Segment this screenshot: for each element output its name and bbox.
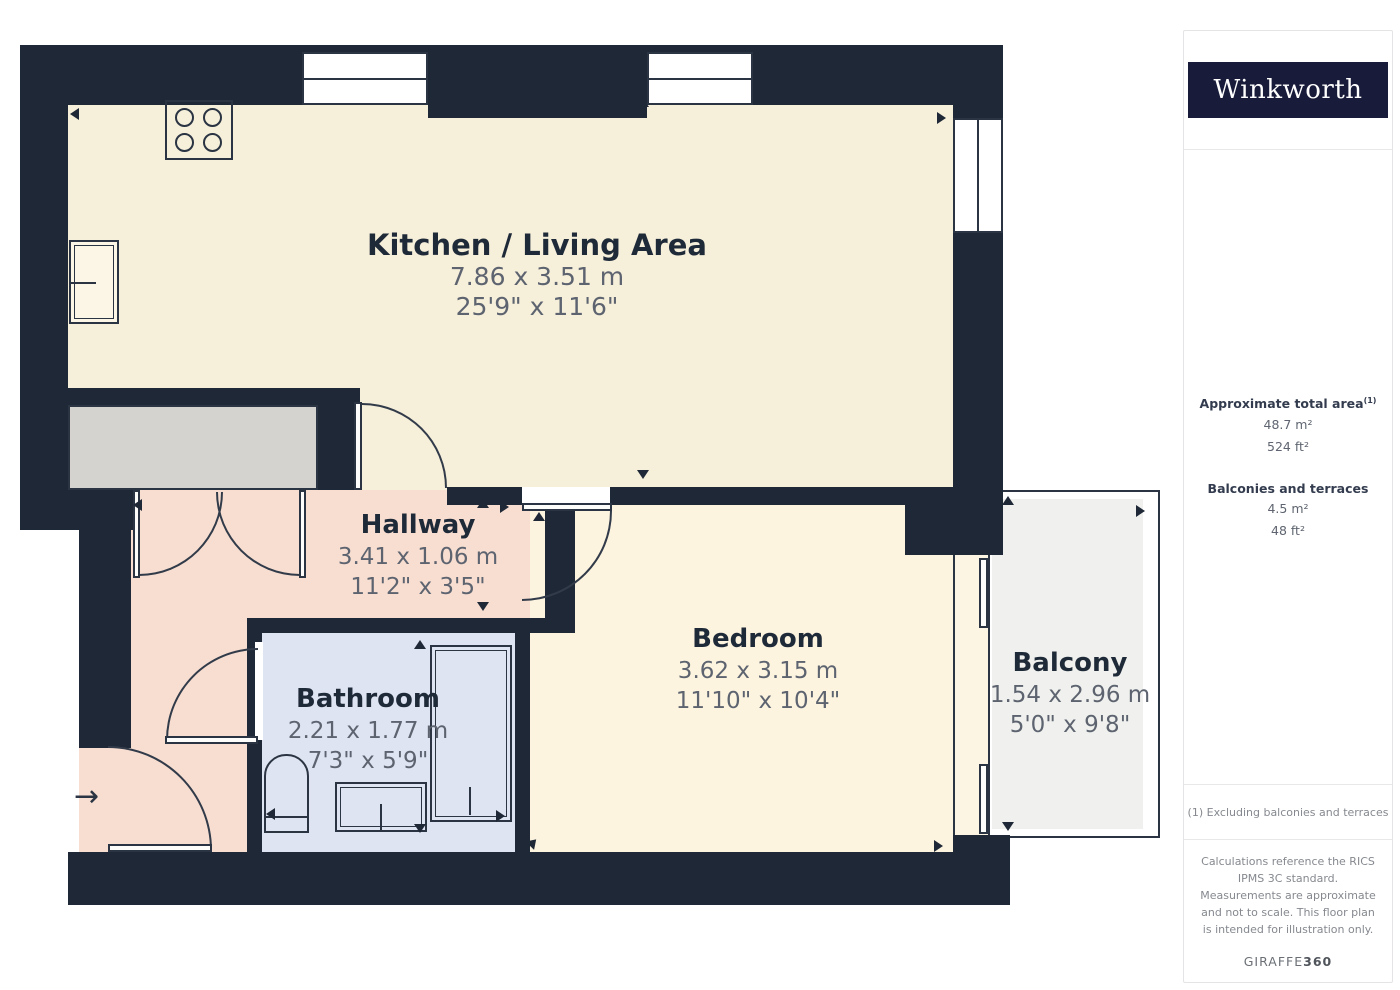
measure-arrow	[533, 512, 545, 521]
sliding-door-panel-top	[979, 558, 988, 628]
measure-arrow	[637, 98, 649, 107]
room-metric: 7.86 x 3.51 m	[367, 262, 707, 292]
room-name: Balcony	[990, 646, 1150, 680]
wall-bathroom-bedroom	[515, 633, 530, 855]
brand-suffix: 360	[1303, 954, 1332, 969]
burner	[203, 108, 222, 127]
room-metric: 1.54 x 2.96 m	[990, 680, 1150, 710]
measure-arrow	[1002, 822, 1014, 831]
burner	[203, 133, 222, 152]
entrance-arrow: →	[74, 782, 99, 812]
measure-arrow	[266, 808, 275, 820]
shower-drain-line	[469, 787, 471, 815]
floor-plan: → Kitchen / Liv	[0, 0, 1180, 990]
burner	[175, 108, 194, 127]
measure-arrow	[500, 501, 509, 513]
window-top-left	[302, 52, 428, 105]
room-metric: 3.41 x 1.06 m	[338, 542, 498, 572]
wall-left-lower	[79, 530, 131, 748]
kitchen-door-leaf	[354, 402, 362, 490]
disclaimer-section: Calculations reference the RICS IPMS 3C …	[1184, 839, 1392, 982]
window-glass-line	[304, 78, 426, 80]
measure-arrow	[937, 112, 946, 124]
area-section: Approximate total area(1) 48.7 m² 524 ft…	[1184, 149, 1392, 784]
room-name: Hallway	[338, 508, 498, 542]
measure-arrow	[414, 640, 426, 649]
closet-area	[68, 405, 318, 490]
bedroom-door-leaf	[522, 503, 612, 511]
measure-arrow	[133, 499, 142, 511]
wall-balcony-corner-block	[905, 487, 1003, 555]
kitchen-sink-unit	[69, 240, 119, 324]
wall-top-middle-block	[428, 105, 647, 118]
window-glass-line	[977, 120, 979, 231]
entrance-door-leaf	[108, 844, 212, 852]
wall-bathroom-top	[247, 618, 545, 633]
giraffe360-brand: GIRAFFE360	[1244, 954, 1332, 969]
footnote-mark: (1)	[1364, 396, 1377, 405]
measure-arrow	[414, 824, 426, 833]
room-imperial: 11'2" x 3'5"	[338, 572, 498, 602]
room-label-bedroom: Bedroom 3.62 x 3.15 m 11'10" x 10'4"	[676, 622, 840, 716]
wall-left-corner	[20, 490, 135, 530]
room-metric: 3.62 x 3.15 m	[676, 656, 840, 686]
wall-closet-top	[20, 388, 360, 405]
measure-arrow	[934, 840, 943, 852]
room-metric: 2.21 x 1.77 m	[288, 716, 448, 746]
brand-name: GIRAFFE	[1244, 954, 1303, 969]
kitchen-floor-lower	[360, 388, 953, 490]
wall-left	[20, 45, 68, 530]
sink-divider	[71, 282, 96, 284]
stove-hob	[165, 100, 233, 160]
bathroom-door-leaf	[165, 736, 258, 744]
balconies-m2: 4.5 m²	[1267, 498, 1308, 520]
bathtub-tap-line	[380, 804, 382, 830]
measure-arrow	[1136, 505, 1145, 517]
closet-door-leaf-right	[299, 490, 306, 578]
room-imperial: 11'10" x 10'4"	[676, 686, 840, 716]
footnote-section: (1) Excluding balconies and terraces	[1184, 784, 1392, 839]
measure-arrow	[477, 602, 489, 611]
sliding-door-panel-bottom	[979, 764, 988, 834]
room-label-hallway: Hallway 3.41 x 1.06 m 11'2" x 3'5"	[338, 508, 498, 602]
room-name: Bathroom	[288, 682, 448, 716]
logo-text: Winkworth	[1213, 75, 1362, 105]
total-area-ft2: 524 ft²	[1267, 436, 1309, 458]
room-imperial: 7'3" x 5'9"	[288, 746, 448, 776]
info-sidebar: Winkworth Approximate total area(1) 48.7…	[1183, 30, 1393, 983]
wall-bottom	[68, 852, 1010, 905]
room-label-balcony: Balcony 1.54 x 2.96 m 5'0" x 9'8"	[990, 646, 1150, 740]
balconies-ft2: 48 ft²	[1271, 520, 1305, 542]
room-name: Kitchen / Living Area	[367, 228, 707, 262]
total-area-heading: Approximate total area(1)	[1200, 392, 1377, 413]
logo-section: Winkworth	[1184, 31, 1392, 149]
measure-arrow	[70, 108, 79, 120]
wall-top	[20, 45, 1003, 105]
total-area-m2: 48.7 m²	[1264, 414, 1313, 436]
room-imperial: 5'0" x 9'8"	[990, 710, 1150, 740]
measure-arrow	[1002, 496, 1014, 505]
sliding-door-track	[953, 555, 955, 835]
window-top-right	[647, 52, 753, 105]
measure-arrow	[637, 470, 649, 479]
room-name: Bedroom	[676, 622, 840, 656]
footnote-text: (1) Excluding balconies and terraces	[1188, 806, 1389, 819]
disclaimer-text: Calculations reference the RICS IPMS 3C …	[1199, 853, 1377, 938]
measure-arrow	[477, 499, 489, 508]
window-glass-line	[649, 78, 751, 80]
room-label-bathroom: Bathroom 2.21 x 1.77 m 7'3" x 5'9"	[288, 682, 448, 776]
room-label-kitchen-living: Kitchen / Living Area 7.86 x 3.51 m 25'9…	[367, 228, 707, 322]
total-area-label: Approximate total area	[1200, 397, 1364, 412]
wall-bottom-right-stub	[953, 835, 1010, 855]
burner	[175, 133, 194, 152]
balconies-heading: Balconies and terraces	[1208, 480, 1369, 498]
window-right	[953, 118, 1003, 233]
measure-arrow	[496, 810, 505, 822]
winkworth-logo: Winkworth	[1188, 62, 1388, 118]
room-imperial: 25'9" x 11'6"	[367, 292, 707, 322]
